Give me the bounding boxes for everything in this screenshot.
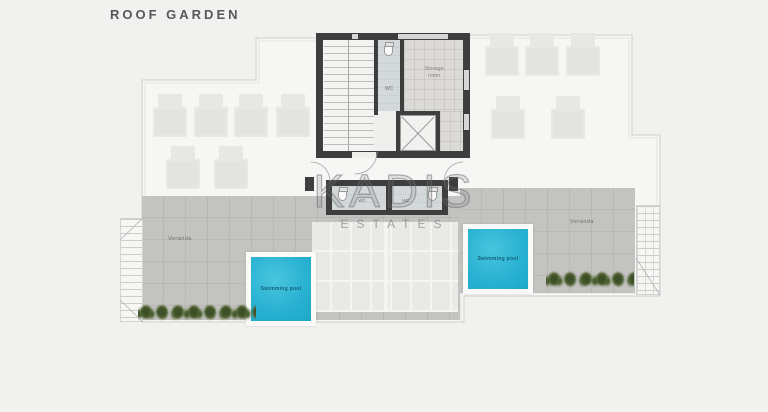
lounge-chair-icon bbox=[525, 33, 559, 77]
watermark: KADIS ESTATES bbox=[305, 168, 485, 231]
stair-partition bbox=[374, 39, 378, 115]
planter-shrubs-left bbox=[138, 301, 256, 324]
lounge-chair-icon bbox=[551, 96, 585, 140]
staircase bbox=[324, 39, 374, 151]
lounge-chair-icon bbox=[166, 146, 200, 190]
window-gap bbox=[398, 34, 448, 39]
elevator-wall-left bbox=[396, 111, 400, 158]
veranda-right-label: Veranda bbox=[552, 219, 612, 226]
storage-room-label: Storage room bbox=[406, 66, 462, 80]
veranda-left-label: Veranda bbox=[150, 236, 210, 243]
lounge-chair-icon bbox=[153, 94, 187, 138]
lounge-chair-icon bbox=[214, 146, 248, 190]
lounge-chair-icon bbox=[566, 33, 600, 77]
storage-label-line2: room bbox=[428, 73, 441, 79]
right-louver-strip bbox=[636, 205, 660, 295]
storage-label-line1: Storage bbox=[424, 66, 443, 72]
watermark-brand: KADIS bbox=[305, 168, 485, 214]
deck-joint-line bbox=[384, 222, 388, 312]
storage-room-extension bbox=[440, 111, 463, 151]
core-wall-right bbox=[463, 33, 470, 158]
page-title: ROOF GARDEN bbox=[110, 7, 241, 22]
window-gap bbox=[352, 34, 358, 39]
lounge-chair-icon bbox=[485, 33, 519, 77]
pool-left-label: Swimming pool bbox=[259, 286, 303, 292]
elevator-wall-right bbox=[436, 111, 440, 158]
window-gap bbox=[464, 70, 469, 90]
wc-label: WC bbox=[378, 86, 400, 92]
window-gap bbox=[464, 114, 469, 130]
swimming-pool-right: Swimming pool bbox=[468, 229, 528, 289]
elevator-shaft bbox=[400, 115, 436, 151]
door-opening bbox=[352, 152, 376, 158]
swimming-pool-left: Swimming pool bbox=[251, 257, 311, 321]
lounge-chair-icon bbox=[276, 94, 310, 138]
core-wall-left bbox=[316, 33, 323, 158]
toilet-icon bbox=[384, 44, 393, 56]
lounge-chair-icon bbox=[234, 94, 268, 138]
floor-plan-page: ROOF GARDEN Swim bbox=[0, 0, 768, 412]
core-wall-bottom bbox=[316, 151, 470, 158]
lounge-chair-icon bbox=[491, 96, 525, 140]
wc-partition bbox=[400, 39, 404, 115]
lounge-chair-icon bbox=[194, 94, 228, 138]
elevator-wall-top bbox=[396, 111, 440, 115]
watermark-subtitle: ESTATES bbox=[305, 217, 485, 231]
pool-right-label: Swimming pool bbox=[476, 256, 520, 262]
planter-shrubs-right bbox=[546, 268, 634, 292]
